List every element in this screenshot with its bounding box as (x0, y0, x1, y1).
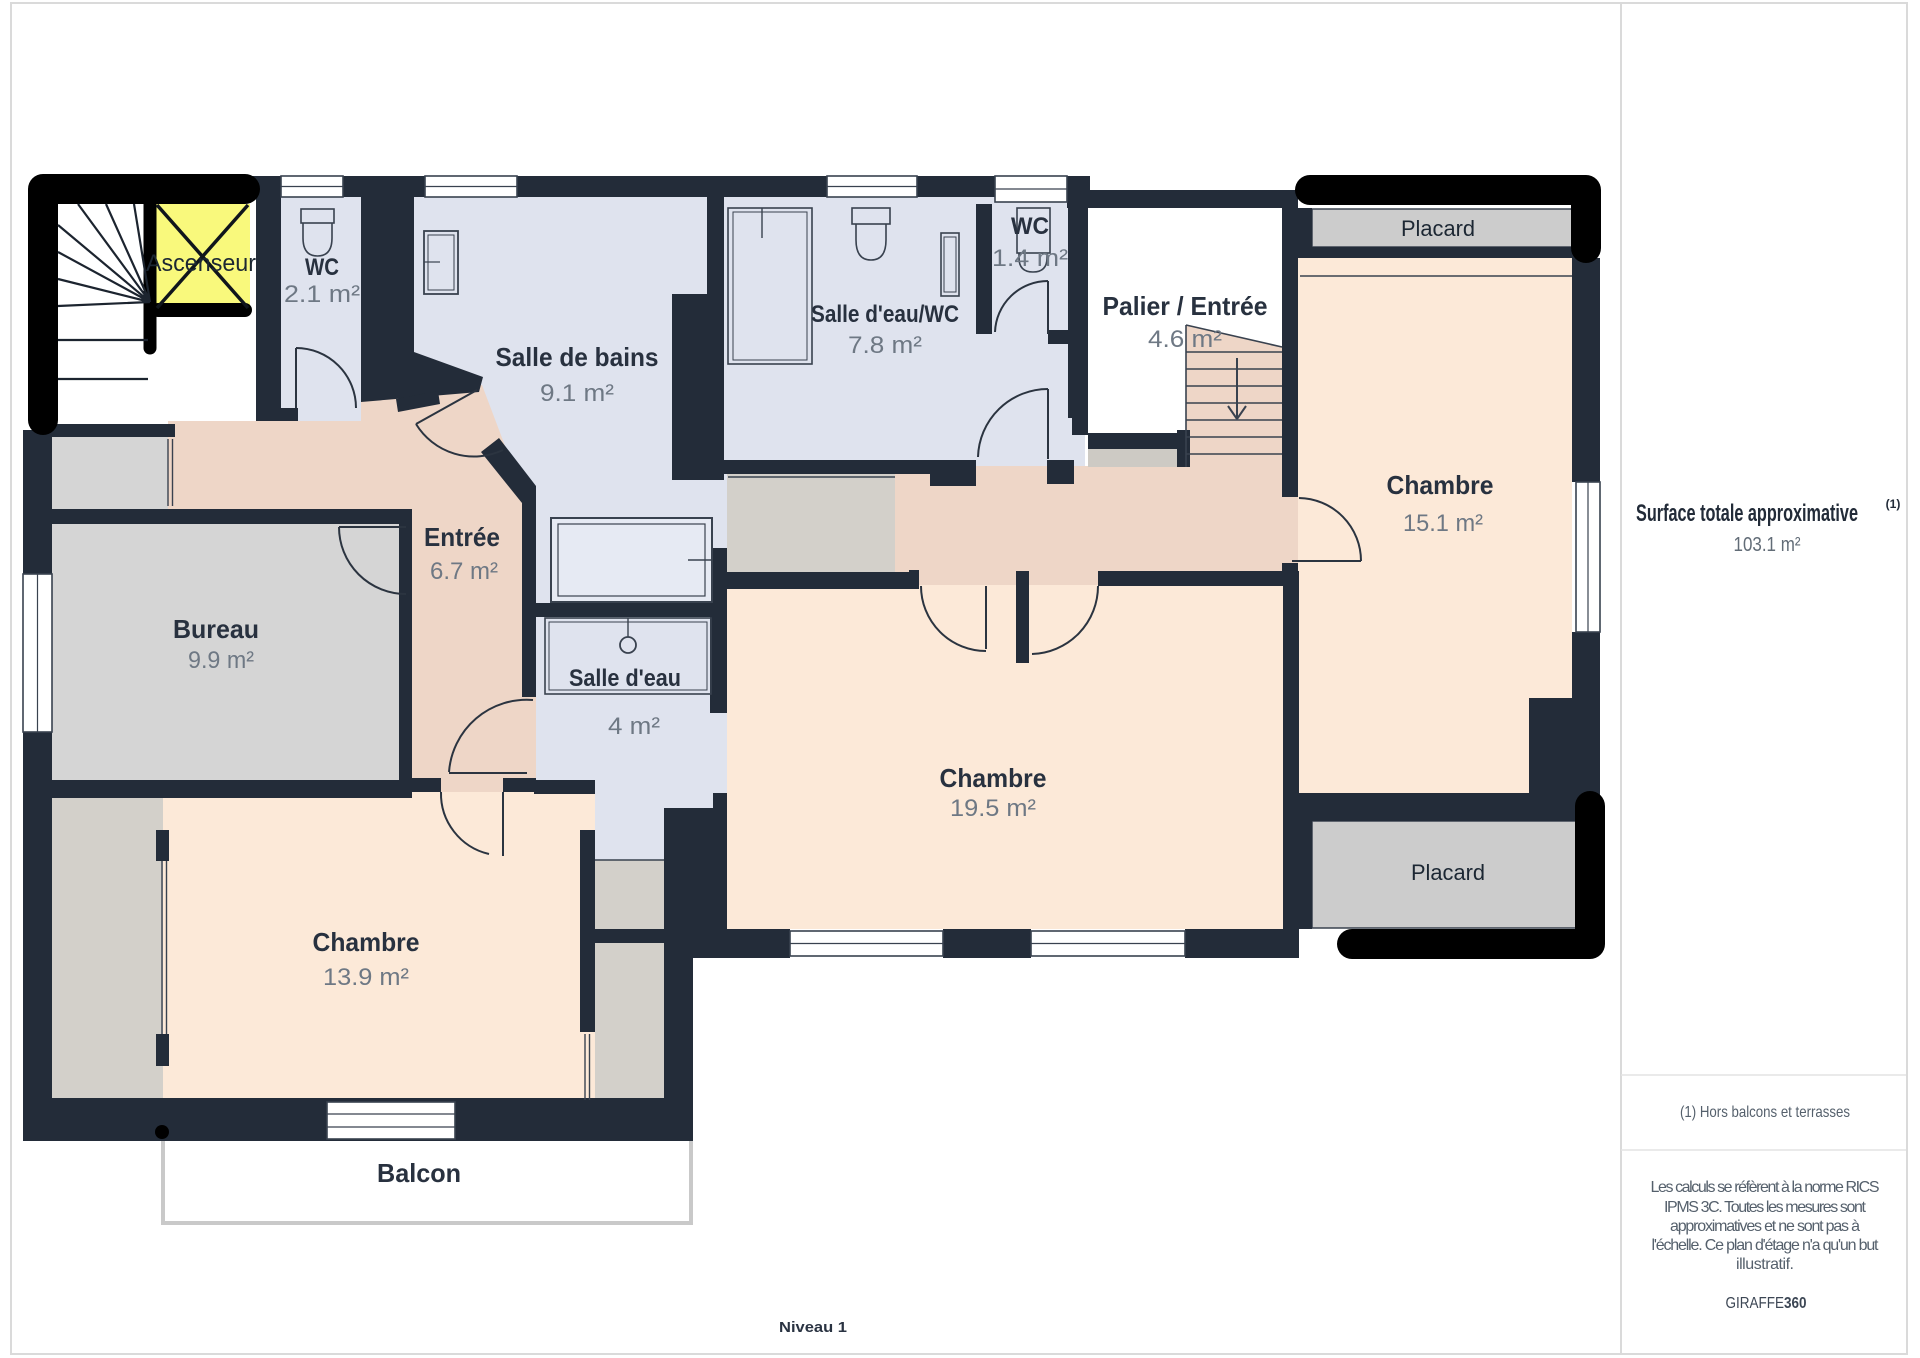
svg-text:WC: WC (305, 254, 339, 281)
svg-text:approximatives et ne sont pas: approximatives et ne sont pas à (1670, 1218, 1860, 1235)
svg-text:l'échelle. Ce plan d'étage n'a: l'échelle. Ce plan d'étage n'a qu'un but (1652, 1237, 1880, 1254)
svg-text:Chambre: Chambre (313, 927, 420, 957)
svg-text:2.1 m²: 2.1 m² (284, 281, 360, 308)
svg-text:Salle de bains: Salle de bains (496, 342, 659, 372)
svg-text:13.9 m²: 13.9 m² (323, 964, 409, 991)
svg-text:(1): (1) (1886, 497, 1901, 511)
svg-text:Salle d'eau/WC: Salle d'eau/WC (811, 301, 959, 328)
svg-text:1.4 m²: 1.4 m² (992, 245, 1068, 272)
svg-text:Placard: Placard (1411, 860, 1485, 885)
svg-text:9.9 m²: 9.9 m² (188, 647, 254, 674)
svg-text:4 m²: 4 m² (608, 713, 660, 740)
svg-text:Entrée: Entrée (424, 522, 500, 552)
svg-text:9.1 m²: 9.1 m² (540, 380, 614, 407)
svg-text:WC: WC (1011, 213, 1049, 240)
svg-text:Bureau: Bureau (173, 614, 259, 644)
svg-text:Surface totale approximative: Surface totale approximative (1636, 500, 1858, 527)
svg-text:IPMS 3C. Toutes les mesures so: IPMS 3C. Toutes les mesures sont (1664, 1199, 1867, 1216)
svg-text:Niveau 1: Niveau 1 (779, 1319, 847, 1336)
svg-text:Balcon: Balcon (377, 1158, 461, 1188)
svg-text:6.7 m²: 6.7 m² (430, 558, 498, 585)
svg-text:Placard: Placard (1401, 216, 1475, 241)
svg-text:Chambre: Chambre (1387, 470, 1494, 500)
svg-text:Chambre: Chambre (940, 763, 1047, 793)
svg-text:Ascenseur: Ascenseur (146, 250, 256, 277)
svg-text:GIRAFFE360: GIRAFFE360 (1726, 1295, 1807, 1312)
svg-text:103.1 m²: 103.1 m² (1734, 534, 1801, 556)
svg-text:19.5 m²: 19.5 m² (950, 795, 1036, 822)
svg-text:Palier / Entrée: Palier / Entrée (1103, 291, 1268, 321)
svg-text:4.6 m²: 4.6 m² (1148, 326, 1222, 353)
svg-text:Les calculs se réfèrent à la n: Les calculs se réfèrent à la norme RICS (1651, 1179, 1880, 1196)
svg-text:15.1 m²: 15.1 m² (1403, 510, 1483, 537)
svg-text:Salle d'eau: Salle d'eau (569, 665, 681, 692)
svg-text:illustratif.: illustratif. (1736, 1256, 1794, 1273)
svg-text:(1) Hors balcons et terrasses: (1) Hors balcons et terrasses (1680, 1104, 1850, 1121)
svg-text:7.8 m²: 7.8 m² (848, 332, 922, 359)
